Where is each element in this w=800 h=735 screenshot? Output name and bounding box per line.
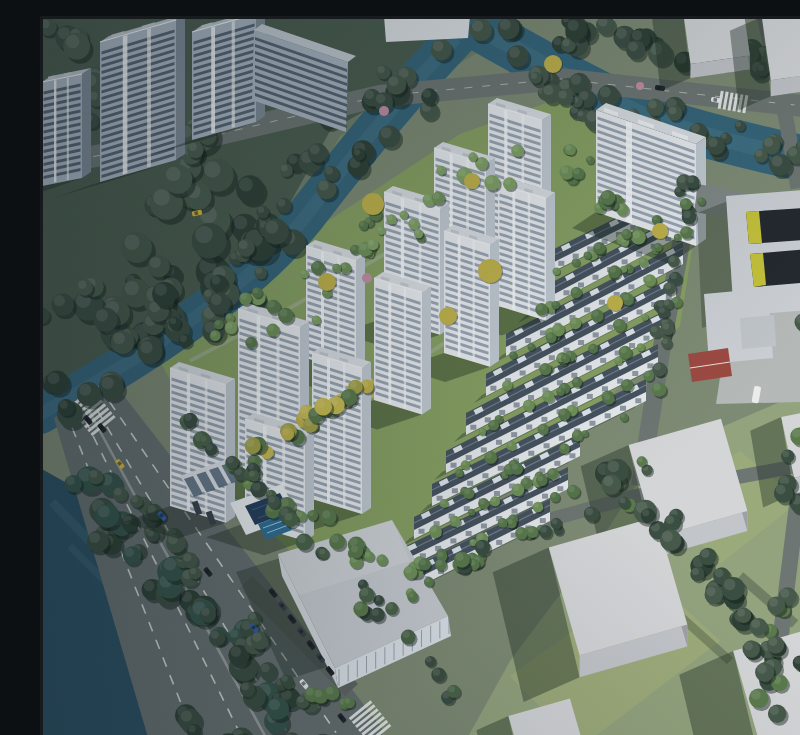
site-aerial-rendering: Residential development aerial rendering [40,16,800,735]
atmosphere-overlay [40,16,800,735]
rendering-canvas [40,16,800,735]
